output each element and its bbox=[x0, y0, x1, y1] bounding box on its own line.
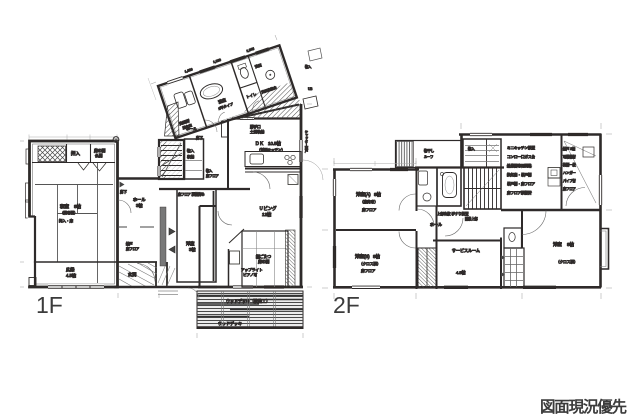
svg-text:図面現況優先: 図面現況優先 bbox=[540, 397, 628, 416]
svg-text:物入: 物入 bbox=[187, 148, 195, 153]
svg-text:廊下: 廊下 bbox=[120, 189, 127, 194]
svg-text:2F: 2F bbox=[333, 292, 360, 318]
svg-text:掘ごたつ: 掘ごたつ bbox=[256, 254, 271, 259]
svg-text:給湯器専用回路: 給湯器専用回路 bbox=[507, 163, 532, 168]
svg-text:アップライト: アップライト bbox=[241, 267, 263, 272]
svg-text:1,820: 1,820 bbox=[184, 67, 193, 73]
svg-text:パイプ付: パイプ付 bbox=[563, 178, 577, 183]
svg-text:納戸 3帖: 納戸 3帖 bbox=[563, 146, 576, 151]
svg-text:ＤＫ: ＤＫ bbox=[255, 141, 264, 146]
svg-text:玄関: 玄関 bbox=[128, 271, 136, 278]
svg-text:枕棚一段: 枕棚一段 bbox=[563, 162, 577, 167]
svg-text:ハンガー: ハンガー bbox=[563, 170, 576, 175]
svg-text:ウッドデッキ（後施工）: ウッドデッキ（後施工） bbox=[226, 298, 270, 304]
svg-text:洋室(A): 洋室(A) bbox=[356, 191, 371, 198]
svg-text:3帖: 3帖 bbox=[189, 246, 196, 253]
svg-text:1,365: 1,365 bbox=[246, 47, 255, 53]
svg-text:勝手口: 勝手口 bbox=[250, 124, 261, 129]
svg-text:納戸: 納戸 bbox=[126, 241, 133, 246]
svg-text:コンロ一口ガス台: コンロ一口ガス台 bbox=[507, 154, 535, 159]
svg-text:1,820: 1,820 bbox=[213, 58, 222, 64]
svg-text:洋室: 洋室 bbox=[553, 241, 562, 248]
svg-text:3帖: 3帖 bbox=[136, 202, 143, 209]
svg-text:8帖: 8帖 bbox=[74, 203, 82, 210]
svg-text:ホール: ホール bbox=[186, 126, 197, 131]
svg-text:床フロア: 床フロア bbox=[126, 246, 140, 251]
svg-text:洋室: 洋室 bbox=[186, 240, 194, 247]
svg-text:ルーフ: ルーフ bbox=[424, 154, 433, 159]
svg-text:リビング: リビング bbox=[259, 205, 277, 212]
svg-text:（南向き）: （南向き） bbox=[360, 199, 378, 204]
svg-text:可動棚付: 可動棚付 bbox=[563, 154, 577, 159]
svg-text:洗面: 洗面 bbox=[254, 62, 263, 69]
svg-text:10.5帖: 10.5帖 bbox=[268, 140, 282, 147]
svg-text:物入: 物入 bbox=[468, 146, 475, 151]
svg-text:上部吹抜 手すり設置: 上部吹抜 手すり設置 bbox=[437, 211, 469, 216]
svg-text:収納: 収納 bbox=[187, 154, 195, 159]
svg-text:4.5帖: 4.5帖 bbox=[456, 269, 466, 275]
svg-text:换気扇・吊戸棚: 换気扇・吊戸棚 bbox=[507, 172, 532, 177]
svg-text:床の間: 床の間 bbox=[94, 148, 106, 153]
svg-text:1F: 1F bbox=[36, 292, 63, 318]
svg-text:（クロス張）: （クロス張） bbox=[359, 261, 381, 266]
svg-text:床の間: 床の間 bbox=[258, 259, 270, 264]
svg-text:床フロア: 床フロア bbox=[206, 173, 219, 178]
svg-text:ピアノ可: ピアノ可 bbox=[243, 272, 257, 277]
svg-text:4.5帖: 4.5帖 bbox=[66, 272, 76, 279]
svg-text:サービスルーム: サービスルーム bbox=[452, 247, 480, 253]
svg-text:床フロア: 床フロア bbox=[362, 207, 377, 212]
svg-text:階段上部: 階段上部 bbox=[465, 216, 479, 221]
svg-text:廊下: 廊下 bbox=[196, 135, 203, 140]
svg-text:吊戸棚・床フロア: 吊戸棚・床フロア bbox=[507, 181, 535, 186]
svg-text:ミニキッチン設置: ミニキッチン設置 bbox=[507, 145, 535, 150]
svg-text:シャッター雨戸: シャッター雨戸 bbox=[304, 130, 308, 153]
svg-text:ホール: ホール bbox=[133, 197, 146, 202]
svg-text:8帖: 8帖 bbox=[374, 191, 381, 198]
svg-text:8帖: 8帖 bbox=[567, 241, 574, 248]
svg-text:UB: UB bbox=[308, 87, 312, 91]
svg-text:床フロア張替済: 床フロア張替済 bbox=[507, 190, 532, 195]
svg-text:ホール: ホール bbox=[430, 222, 442, 227]
svg-text:床フロア: 床フロア bbox=[361, 268, 376, 273]
svg-text:床フロア 張替済み: 床フロア 張替済み bbox=[178, 192, 205, 197]
svg-text:（クロス張）: （クロス張） bbox=[556, 259, 578, 264]
svg-text:12帖: 12帖 bbox=[262, 211, 272, 218]
svg-text:仏間: 仏間 bbox=[95, 153, 103, 158]
svg-text:土間收納: 土間收納 bbox=[250, 129, 265, 134]
svg-text:物入: 物入 bbox=[206, 168, 213, 173]
svg-text:（続き間）: （続き間） bbox=[60, 210, 78, 215]
svg-text:床フロア: 床フロア bbox=[563, 186, 576, 191]
svg-text:洋室(B): 洋室(B) bbox=[355, 253, 370, 260]
svg-text:物入: 物入 bbox=[305, 64, 312, 69]
svg-text:8帖: 8帖 bbox=[373, 253, 380, 260]
svg-text:浴室: 浴室 bbox=[217, 96, 226, 104]
svg-text:和室: 和室 bbox=[60, 203, 69, 210]
svg-text:広縁: 広縁 bbox=[66, 266, 74, 273]
svg-text:押入・床: 押入・床 bbox=[59, 218, 73, 223]
svg-text:押入: 押入 bbox=[71, 150, 80, 157]
svg-text:物干し: 物干し bbox=[424, 148, 435, 153]
